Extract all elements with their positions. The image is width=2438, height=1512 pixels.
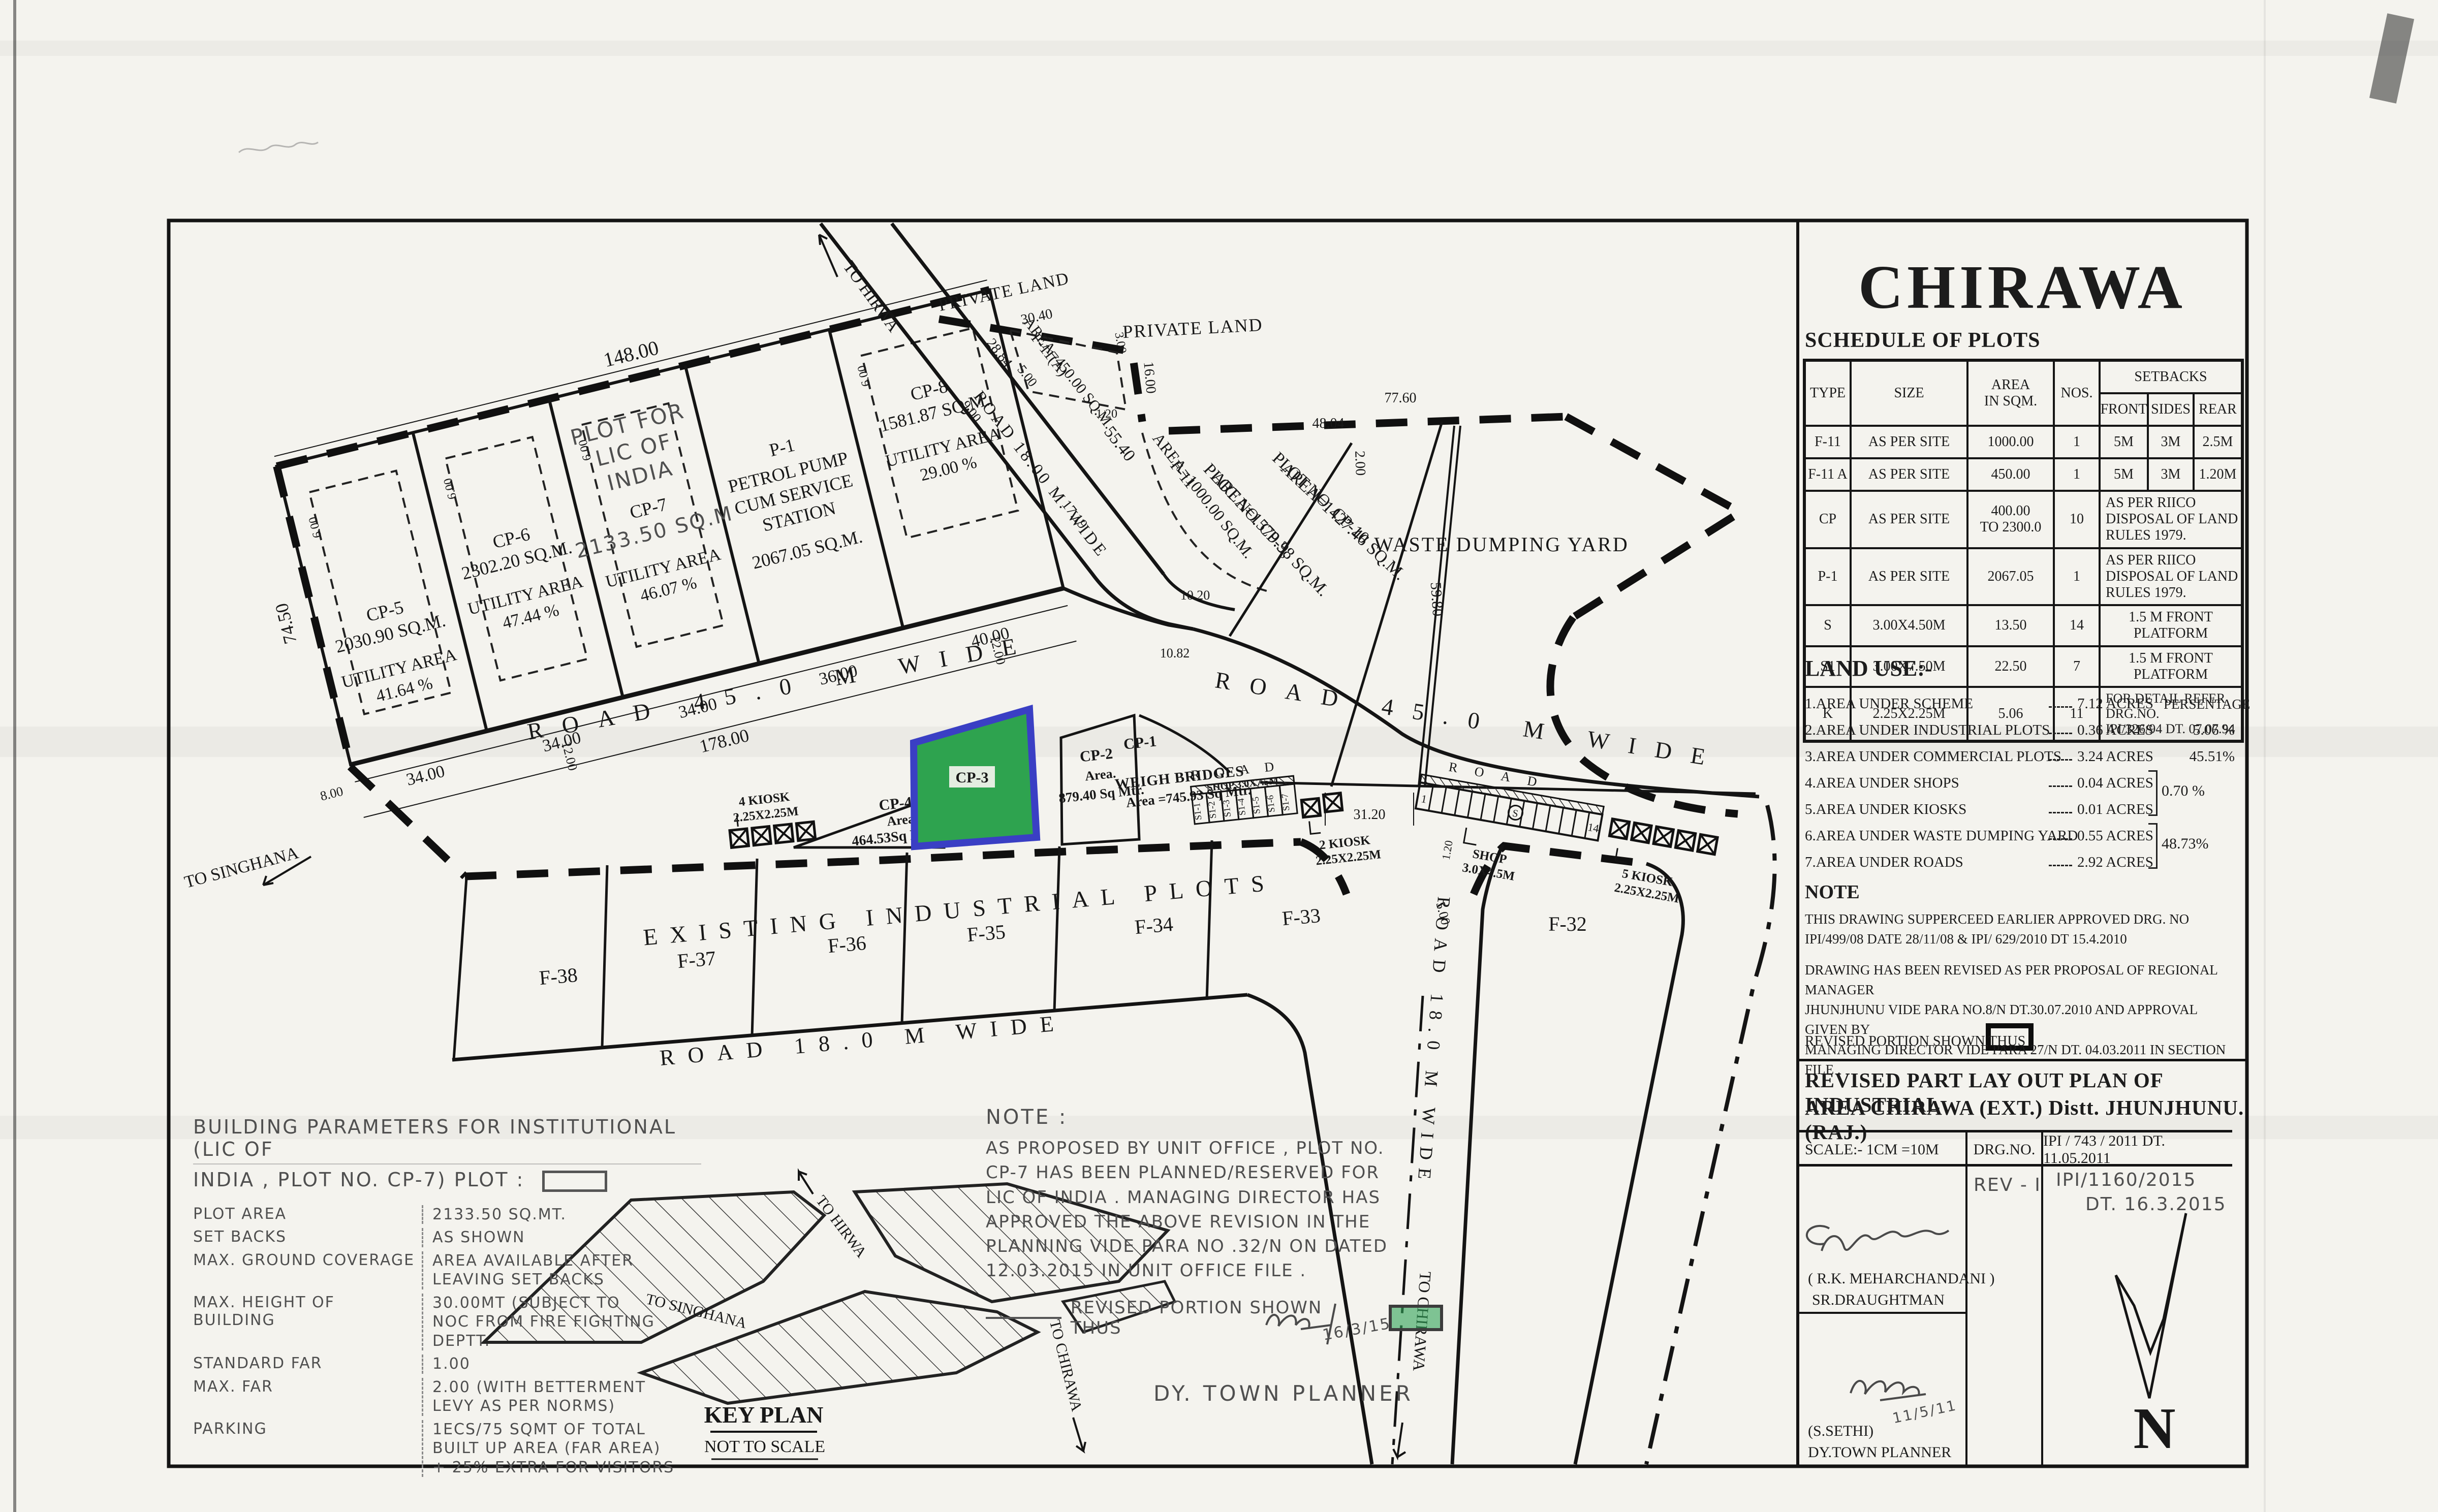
- kiosk-icon: [752, 826, 771, 845]
- table-cell: AS PER SITE: [1851, 458, 1967, 491]
- dim-148: 148.00: [601, 336, 661, 371]
- table-cell: AS PER SITE: [1851, 426, 1967, 458]
- table-cell: 5M: [2100, 458, 2148, 491]
- bparams-row: MAX. FAR 2.00 (WITH BETTERMENT LEVY AS P…: [193, 1378, 701, 1416]
- land-use-label: 2.AREA UNDER INDUSTRIAL PLOTS: [1805, 722, 2044, 739]
- table-cell: 2.5M: [2194, 426, 2242, 458]
- table-cell: 450.00: [1967, 458, 2054, 491]
- land-use-value: 7.12 ACRES: [2077, 696, 2164, 712]
- dim-8: 8.00: [319, 784, 345, 804]
- sig-divider-v2: [2041, 1161, 2043, 1466]
- title-section-divider: [1798, 1059, 2247, 1061]
- shop-leader: [1464, 828, 1479, 845]
- dotted-leader: [2049, 785, 2072, 787]
- table-cell: S: [1805, 605, 1851, 646]
- middle-road-east-edge: [1452, 844, 1503, 1464]
- sig2-role: DY.TOWN PLANNER: [1808, 1444, 1951, 1461]
- dim-74.50: 74.50: [271, 601, 300, 646]
- dotted-leader: [2049, 864, 2072, 866]
- bparams-value: 1ECS/75 SQMT OF TOTAL BUILT UP AREA (FAR…: [422, 1420, 701, 1477]
- col-header-sides: SIDES: [2148, 393, 2194, 426]
- table-cell: 1000.00: [1967, 426, 2054, 458]
- shop-label: S1-7: [1279, 793, 1291, 811]
- plot-label-f34: F-34: [1134, 912, 1174, 938]
- col-header-nos: NOS.: [2054, 361, 2100, 426]
- f-plot-divider: [902, 853, 907, 1024]
- plot-label-f36: F-36: [827, 931, 867, 957]
- pencil-scribble: [239, 142, 318, 152]
- table-cell-setback-note: AS PER RIICO DISPOSAL OF LAND RULES 1979…: [2100, 548, 2242, 606]
- dotted-leader: [2049, 811, 2072, 813]
- kiosk-group-2: 2 KIOSK 2.25X2.25M: [1301, 790, 1382, 869]
- kiosk-icon: [1675, 831, 1695, 850]
- bparams-value: 2.00 (WITH BETTERMENT LEVY AS PER NORMS): [422, 1378, 701, 1416]
- plot-label-p1: P-1: [767, 434, 797, 460]
- rev-label: REV - I: [1974, 1175, 2041, 1195]
- table-cell: F-11: [1805, 426, 1851, 458]
- plot-label-f32: F-32: [1548, 912, 1587, 935]
- bparams-heading-1: BUILDING PARAMETERS FOR INSTITUTIONAL (L…: [193, 1116, 701, 1164]
- table-cell: 3M: [2148, 426, 2194, 458]
- dim-59.80: 59.80: [1427, 582, 1447, 617]
- bparams-row: MAX. GROUND COVERAGE AREA AVAILABLE AFTE…: [193, 1251, 701, 1289]
- land-use-row: 1.AREA UNDER SCHEME 7.12 ACRES PERSENTAG…: [1805, 686, 2235, 712]
- shop-s-mark: S: [1512, 808, 1519, 820]
- bparams-key: SET BACKS: [193, 1228, 422, 1247]
- land-use-label: 7.AREA UNDER ROADS: [1805, 854, 2044, 871]
- f-plot-divider: [1054, 846, 1059, 1011]
- kiosk-icon: [1323, 793, 1342, 812]
- shop-label: S1-3: [1221, 799, 1233, 817]
- plot-label-cp2: CP-2: [1079, 745, 1113, 766]
- dim-178: 178.00: [697, 725, 751, 757]
- cnote-body: AS PROPOSED BY UNIT OFFICE , PLOT NO. CP…: [986, 1136, 1443, 1283]
- existing-industrial-plots-label: EXISTING INDUSTRIAL PLOTS: [642, 869, 1277, 951]
- table-cell: CP: [1805, 491, 1851, 548]
- table-cell: 1: [2054, 458, 2100, 491]
- tb-note-p1: THIS DRAWING SUPPERCEED EARLIER APPROVED…: [1805, 909, 2227, 949]
- bparams-value: AS SHOWN: [422, 1228, 701, 1247]
- f-plot-divider: [1207, 840, 1212, 1000]
- scanned-drawing-sheet: .t{font-family:"Liberation Serif",serif;…: [0, 0, 2438, 1512]
- bparams-row: STANDARD FAR 1.00: [193, 1354, 701, 1374]
- cp2-area-word: Area.: [1084, 766, 1117, 783]
- key-plan-subtitle: NOT TO SCALE: [704, 1437, 825, 1456]
- col-header-rear: REAR: [2194, 393, 2242, 426]
- f-plot-divider: [602, 865, 607, 1048]
- table-cell: 22.50: [1967, 646, 2054, 687]
- sig2-name: (S.SETHI): [1808, 1423, 1873, 1440]
- sig1-role: SR.DRAUGHTMAN: [1812, 1291, 1945, 1309]
- land-use-label: 3.AREA UNDER COMMERCIAL PLOTS: [1805, 748, 2044, 765]
- sig-divider-h: [1798, 1312, 1965, 1314]
- table-cell: 10: [2054, 491, 2100, 548]
- table-cell-setback-note: 1.5 M FRONT PLATFORM: [2100, 605, 2242, 646]
- pct-brace-shops-kiosks: [2148, 770, 2158, 816]
- revised-portion-swatch-green: [1389, 1305, 1443, 1331]
- dim-48.04: 48.04: [1312, 416, 1345, 431]
- dim-10.20: 10.20: [1180, 588, 1210, 603]
- dotted-leader: [2049, 706, 2072, 708]
- kiosk-icon: [730, 829, 748, 847]
- rev-drg-no: IPI/1160/2015: [2056, 1170, 2196, 1190]
- dim-16: 16.00: [1140, 361, 1159, 394]
- rev-date: DT. 16.3.2015: [2085, 1194, 2227, 1215]
- land-use-label: 4.AREA UNDER SHOPS: [1805, 775, 2044, 792]
- kiosk-icon: [1653, 827, 1673, 846]
- table-cell-setback-note: 1.5 M FRONT PLATFORM: [2100, 646, 2242, 687]
- plot-label-cp1: CP-1: [1123, 733, 1158, 753]
- dotted-leader: [2049, 732, 2072, 734]
- land-use-value: 0.36 ACRES: [2077, 722, 2164, 739]
- key-plan-title: KEY PLAN: [704, 1402, 824, 1428]
- bparams-row: PARKING 1ECS/75 SQMT OF TOTAL BUILT UP A…: [193, 1420, 701, 1477]
- cnote-signoff: DY. TOWN PLANNER: [1153, 1381, 1443, 1406]
- bparams-row: MAX. HEIGHT OF BUILDING 30.00MT (SUBJECT…: [193, 1294, 701, 1351]
- plot-label-cp4: CP-4: [878, 794, 913, 814]
- cnote-heading: NOTE :: [986, 1106, 1443, 1129]
- tb-note-p2: DRAWING HAS BEEN REVISED AS PER PROPOSAL…: [1805, 960, 2227, 1080]
- cp9-cp10-divider: [1331, 422, 1442, 786]
- bparams-value: 1.00: [422, 1354, 701, 1374]
- shop-number-last: 14: [1587, 821, 1600, 835]
- land-use-pct: 5.06 %: [2164, 722, 2235, 739]
- plot-label-f38: F-38: [538, 963, 578, 989]
- dim-1.20: 1.20: [1440, 839, 1455, 861]
- drawing-city-title: CHIRAWA: [1798, 252, 2247, 323]
- land-use-heading: LAND USE:-: [1805, 655, 1932, 681]
- land-use-label: 6.AREA UNDER WASTE DUMPING YARD: [1805, 828, 2044, 844]
- table-cell: AS PER SITE: [1851, 491, 1967, 548]
- tb-note-heading: NOTE: [1805, 881, 1860, 903]
- shop-label: S1-2: [1206, 801, 1218, 819]
- table-cell: 3M: [2148, 458, 2194, 491]
- kiosk-icon: [1698, 834, 1717, 854]
- plot-label-f35: F-35: [966, 920, 1006, 946]
- table-cell: 7: [2054, 646, 2100, 687]
- tb-revised-portion-label: REVISED PORTION SHOWN THUS: [1805, 1033, 2025, 1050]
- sig-divider-v1: [1965, 1161, 1967, 1466]
- dim-6: 6.00: [306, 515, 324, 539]
- key-to-chirawa-arrow: [1073, 1417, 1085, 1451]
- dim-31.20: 31.20: [1354, 807, 1386, 823]
- bparams-key: PLOT AREA: [193, 1205, 422, 1224]
- kiosk-icon: [1632, 823, 1651, 842]
- col-header-front: FRONT: [2100, 393, 2148, 426]
- drg-no-value: IPI / 743 / 2011 DT. 11.05.2011: [2041, 1132, 2232, 1167]
- bparams-value: AREA AVAILABLE AFTER LEAVING SET BACKS: [422, 1251, 701, 1289]
- waste-yard-boundary-point: [1566, 417, 1740, 617]
- private-land-label-2: PRIVATE LAND: [1122, 314, 1263, 342]
- table-cell: 1.20M: [2194, 458, 2242, 491]
- pct-brace-waste-roads: [2148, 823, 2158, 869]
- kiosk-icon: [796, 822, 815, 840]
- kiosk-leader: [1309, 820, 1321, 834]
- bparams-value: 30.00MT (SUBJECT TO NOC FROM FIRE FIGHTI…: [422, 1294, 701, 1351]
- land-use-row: 2.AREA UNDER INDUSTRIAL PLOTS 0.36 ACRES…: [1805, 712, 2235, 739]
- dim-10.82: 10.82: [1160, 646, 1190, 660]
- bparams-heading-2: INDIA , PLOT NO. CP-7) PLOT :: [193, 1169, 701, 1192]
- land-use-row: 3.AREA UNDER COMMERCIAL PLOTS 3.24 ACRES…: [1805, 739, 2235, 765]
- land-use-value: 3.24 ACRES: [2077, 748, 2164, 765]
- dim-77.60: 77.60: [1385, 390, 1417, 406]
- col-header-area: AREA IN SQM.: [1967, 361, 2054, 426]
- bparams-value: 2133.50 SQ.MT.: [422, 1205, 701, 1224]
- bparams-key: MAX. FAR: [193, 1378, 422, 1416]
- plot-label-f33: F-33: [1281, 904, 1321, 930]
- center-note-block: NOTE : AS PROPOSED BY UNIT OFFICE , PLOT…: [986, 1106, 1443, 1406]
- dim-2: 2.00: [1352, 451, 1368, 476]
- col-header-size: SIZE: [1851, 361, 1967, 426]
- title-block: CHIRAWA SCHEDULE OF PLOTS TYPE SIZE AREA…: [1798, 220, 2247, 1466]
- waste-dumping-yard-label: WASTE DUMPING YARD: [1374, 533, 1629, 556]
- table-cell: 400.00 TO 2300.0: [1967, 491, 2054, 548]
- shop-label: S1-5: [1250, 796, 1262, 814]
- leader-line: [986, 1317, 1061, 1319]
- kiosk-icon: [774, 824, 793, 843]
- shop-label: S1-6: [1265, 795, 1276, 813]
- shop-label: S1-1: [1192, 802, 1203, 821]
- table-cell: 1: [2054, 426, 2100, 458]
- dotted-leader: [2049, 759, 2072, 761]
- bparams-key: PARKING: [193, 1420, 422, 1477]
- bparams-row: SET BACKS AS SHOWN: [193, 1228, 701, 1247]
- bparams-row: PLOT AREA 2133.50 SQ.MT.: [193, 1205, 701, 1224]
- dim-1.20: 1.20: [1096, 407, 1117, 421]
- dim-30.40: 30.40: [1019, 306, 1054, 328]
- private-land-boundary-2: [1169, 417, 1566, 431]
- bparams-key: MAX. HEIGHT OF BUILDING: [193, 1294, 422, 1351]
- table-cell: 1: [2054, 548, 2100, 606]
- f38-west-edge: [454, 878, 466, 1060]
- kiosk-icon: [1609, 819, 1629, 839]
- dim-28.84: 28.84: [983, 335, 1015, 370]
- table-cell: 5M: [2100, 426, 2148, 458]
- f-plot-divider: [752, 859, 757, 1036]
- land-use-pct: 45.51%: [2164, 748, 2235, 765]
- scale-drg-row: SCALE:- 1CM =10M DRG.NO. IPI / 743 / 201…: [1798, 1130, 2232, 1167]
- scale-label: SCALE:- 1CM =10M: [1798, 1132, 1965, 1167]
- col-header-setbacks: SETBACKS: [2100, 361, 2242, 393]
- drg-no-label: DRG.NO.: [1965, 1132, 2041, 1167]
- cnote-revised-label: REVISED PORTION SHOWN THUS: [1071, 1298, 1378, 1338]
- table-cell: 13.50: [1967, 605, 2054, 646]
- schedule-of-plots-table: TYPE SIZE AREA IN SQM. NOS. SETBACKS FRO…: [1803, 359, 2244, 743]
- pct-shops-kiosks: 0.70 %: [2162, 782, 2205, 800]
- table-cell: AS PER SITE: [1851, 548, 1967, 606]
- bparams-heading-2-text: INDIA , PLOT NO. CP-7) PLOT :: [193, 1169, 524, 1191]
- dim-6: 6.00: [855, 364, 873, 388]
- to-singhana-label: TO SINGHANA: [182, 843, 301, 892]
- land-use-label: 5.AREA UNDER KIOSKS: [1805, 801, 2044, 818]
- table-cell: P-1: [1805, 548, 1851, 606]
- shop-number-first: 1: [1420, 792, 1428, 806]
- table-cell-setback-note: AS PER RIICO DISPOSAL OF LAND RULES 1979…: [2100, 491, 2242, 548]
- land-use-label: 1.AREA UNDER SCHEME: [1805, 696, 2044, 712]
- road45-right-label: ROAD 45.0 M WIDE: [1213, 667, 1726, 773]
- shop-label: S1-4: [1236, 798, 1247, 816]
- dim-34: 34.00: [404, 762, 447, 790]
- road18-bottom-label: ROAD 18.0 M WIDE: [659, 1010, 1068, 1070]
- dim-6: 6.00: [442, 477, 459, 500]
- dotted-leader: [2049, 838, 2072, 840]
- waste-yard-boundary-curve: [1550, 617, 1738, 814]
- table-cell: F-11 A: [1805, 458, 1851, 491]
- plot-label-f37: F-37: [676, 947, 716, 972]
- chirawa-road-east-boundary: [1646, 805, 1775, 1464]
- pct-waste-roads: 48.73%: [2162, 835, 2209, 853]
- bparams-key: MAX. GROUND COVERAGE: [193, 1251, 422, 1289]
- building-parameters-block: BUILDING PARAMETERS FOR INSTITUTIONAL (L…: [193, 1116, 701, 1481]
- table-cell: 3.00X4.50M: [1851, 605, 1967, 646]
- persentage-header: PERSENTAGE: [2164, 697, 2235, 712]
- table-cell: 2067.05: [1967, 548, 2054, 606]
- kiosk-group-4: 4 KIOSK 2.25X2.25M: [726, 788, 816, 848]
- key-to-hirwa-arrow: [799, 1172, 813, 1194]
- sig1-name: ( R.K. MEHARCHANDANI ): [1808, 1270, 1995, 1287]
- bparams-key: STANDARD FAR: [193, 1354, 422, 1374]
- table-cell: 14: [2054, 605, 2100, 646]
- plot-label-cp3: CP-3: [956, 769, 989, 786]
- col-header-type: TYPE: [1805, 361, 1851, 426]
- schedule-heading: SCHEDULE OF PLOTS: [1805, 328, 2041, 353]
- kiosk-icon: [1301, 798, 1320, 817]
- bparams-plot-swatch: [542, 1171, 607, 1192]
- cnote-revised-row: REVISED PORTION SHOWN THUS: [986, 1298, 1443, 1338]
